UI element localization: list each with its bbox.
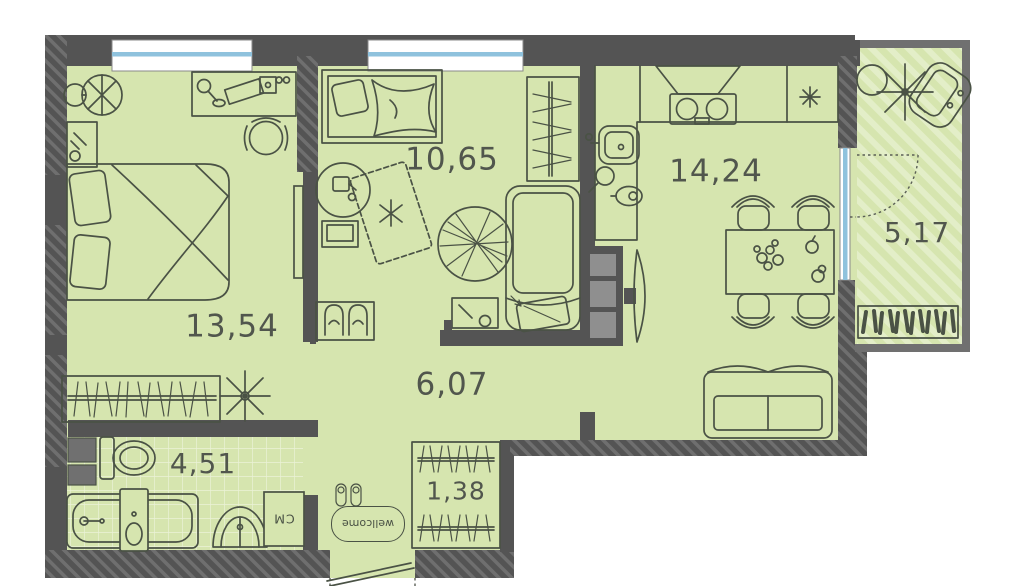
wall-bathroom-right bbox=[303, 495, 318, 550]
doormat: wellcome bbox=[331, 506, 405, 542]
boiler-asterisk-icon bbox=[800, 87, 820, 107]
wall-kitchen-balcony bbox=[838, 56, 857, 148]
wall-wardrobe-right bbox=[500, 440, 514, 552]
area-label-bathroom: 4,51 bbox=[170, 450, 236, 478]
area-label-bedroom-2: 10,65 bbox=[405, 145, 499, 176]
floor-plan: 13,54 10,65 14,24 5,17 6,07 4,51 1,38 СМ… bbox=[0, 0, 1012, 586]
wall-left-column-3 bbox=[45, 355, 67, 467]
plant-icon bbox=[220, 371, 270, 421]
washing-machine-icon bbox=[68, 438, 96, 485]
floor-plan-drawing bbox=[0, 0, 1012, 586]
wall-left-column-2 bbox=[45, 225, 67, 335]
wall-living-right bbox=[838, 280, 855, 352]
wall-bottom-left bbox=[45, 550, 330, 578]
window-bedroom-2-glass bbox=[368, 52, 523, 57]
wall-bottom-entrance bbox=[415, 550, 514, 578]
doormat-text: wellcome bbox=[342, 518, 394, 531]
wall-hall-kitchen-stub bbox=[580, 412, 595, 440]
washing-machine-label: СМ bbox=[273, 512, 295, 527]
area-label-kitchen-living: 14,24 bbox=[669, 157, 763, 188]
window-bedroom-1-glass bbox=[112, 52, 252, 57]
bedroom-1-door-leaf bbox=[294, 186, 303, 278]
column-between-bedrooms bbox=[297, 56, 318, 172]
balcony-door-glass bbox=[843, 148, 848, 280]
wall-left-column bbox=[45, 35, 67, 175]
tv-unit-icon bbox=[583, 246, 645, 346]
area-label-bedroom: 13,54 bbox=[185, 312, 279, 343]
area-label-wardrobe: 1,38 bbox=[426, 479, 486, 504]
area-label-hallway: 6,07 bbox=[415, 370, 488, 401]
wall-living-bottom bbox=[510, 440, 867, 456]
area-label-balcony: 5,17 bbox=[884, 219, 950, 247]
wall-bedroom2-low bbox=[440, 330, 595, 346]
